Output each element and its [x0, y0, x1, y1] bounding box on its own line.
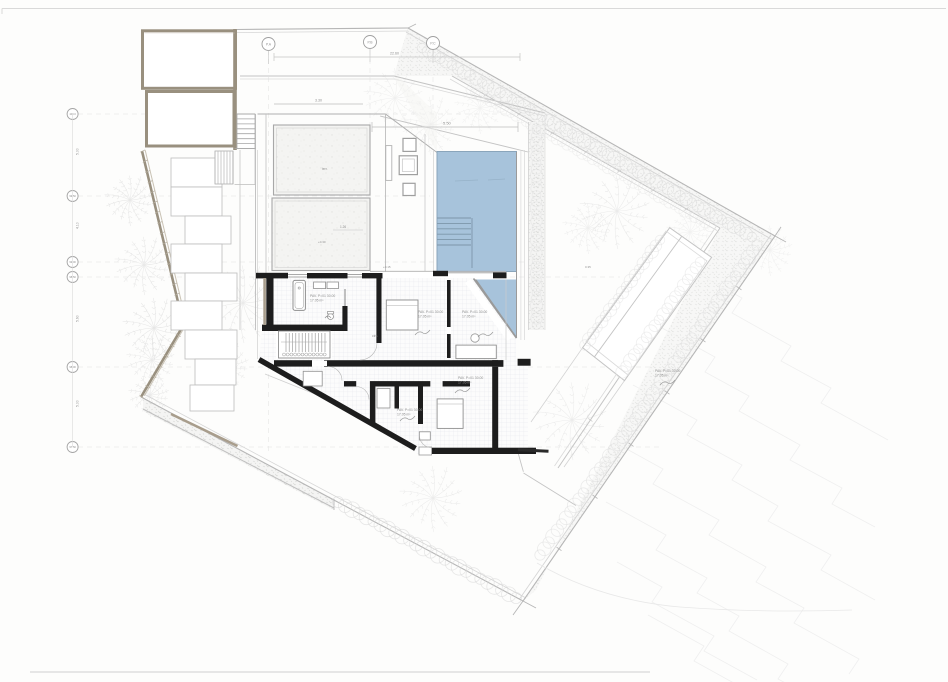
- svg-text:22.60: 22.60: [390, 52, 399, 56]
- svg-text:terr.: terr.: [322, 167, 328, 171]
- svg-text:5.00: 5.00: [76, 148, 80, 155]
- svg-text:5.50: 5.50: [443, 121, 452, 126]
- svg-text:PAV. P=01 30.00: PAV. P=01 30.00: [418, 310, 443, 314]
- svg-text:5.60: 5.60: [76, 315, 80, 322]
- svg-text:circ.: circ.: [372, 334, 378, 338]
- svg-text:17.05 m²: 17.05 m²: [458, 380, 472, 384]
- svg-text:P.B: P.B: [367, 40, 373, 44]
- svg-text:17.05 m²: 17.05 m²: [655, 373, 669, 377]
- svg-text:+0.15: +0.15: [383, 265, 391, 269]
- svg-text:17.05 m²: 17.05 m²: [310, 298, 324, 302]
- svg-text:PAV. P=01 30.00: PAV. P=01 30.00: [462, 310, 487, 314]
- svg-text:+0.30: +0.30: [318, 240, 326, 244]
- svg-text:PAV. P=01 30.00: PAV. P=01 30.00: [458, 376, 483, 380]
- svg-text:1.26: 1.26: [340, 225, 346, 229]
- svg-text:PAV. P=01 30.00: PAV. P=01 30.00: [310, 294, 335, 298]
- svg-text:PAV. P=01 30.00: PAV. P=01 30.00: [655, 369, 680, 373]
- svg-text:17.05 m²: 17.05 m²: [462, 314, 476, 318]
- svg-text:3.30: 3.30: [315, 99, 322, 103]
- svg-text:0.35: 0.35: [585, 265, 591, 269]
- svg-text:17.05 m²: 17.05 m²: [418, 314, 432, 318]
- svg-text:5.00: 5.00: [76, 400, 80, 407]
- svg-text:4.10: 4.10: [76, 222, 80, 229]
- svg-text:PAV. P=01 30.00: PAV. P=01 30.00: [397, 408, 422, 412]
- svg-text:P.A: P.A: [266, 42, 272, 46]
- svg-text:P.C: P.C: [430, 41, 436, 45]
- svg-text:17.05 m²: 17.05 m²: [397, 412, 411, 416]
